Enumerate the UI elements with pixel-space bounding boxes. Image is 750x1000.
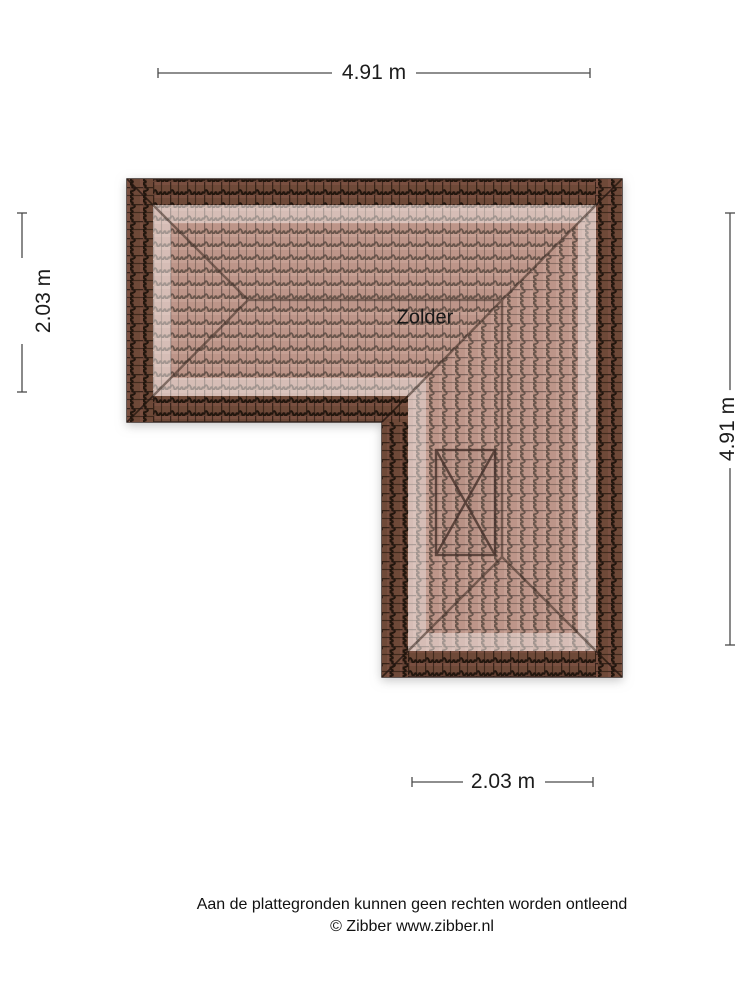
dimension-left-line [17, 213, 27, 392]
roof-edge-left-strip [127, 179, 153, 422]
footer-copyright: © Zibber www.zibber.nl [197, 916, 628, 938]
roof-edge-leg-left-strip [382, 422, 408, 677]
dimension-lines [17, 68, 735, 787]
roof-plan [127, 179, 622, 677]
room-label-zolder: Zolder [397, 307, 454, 330]
dimension-bottom-label: 2.03 m [464, 769, 542, 795]
dimension-right-label: 4.91 m [715, 390, 741, 468]
dimension-top-label: 4.91 m [335, 60, 413, 86]
floorplan-canvas [0, 0, 750, 1000]
footer: Aan de plattegronden kunnen geen rechten… [197, 894, 628, 938]
dimension-left-label: 2.03 m [31, 262, 57, 340]
roof-window-icon [436, 450, 495, 555]
roof-edge-right-strip [596, 179, 622, 677]
footer-disclaimer: Aan de plattegronden kunnen geen rechten… [197, 894, 628, 916]
